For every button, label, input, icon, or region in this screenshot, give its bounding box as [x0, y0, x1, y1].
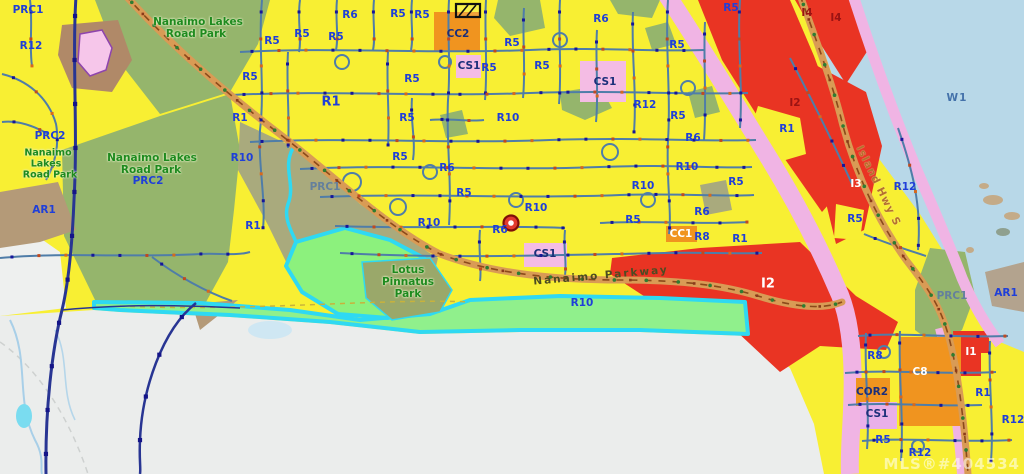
zoning-map: PRC1R12PRC2NanaimoLakesRoad ParkNanaimo … — [0, 0, 1024, 474]
site-outline-icon — [456, 4, 480, 17]
mls-watermark: MLS®#404534 — [884, 455, 1020, 473]
zoning-map-canvas[interactable] — [0, 0, 1024, 474]
property-location-marker[interactable] — [504, 216, 519, 231]
